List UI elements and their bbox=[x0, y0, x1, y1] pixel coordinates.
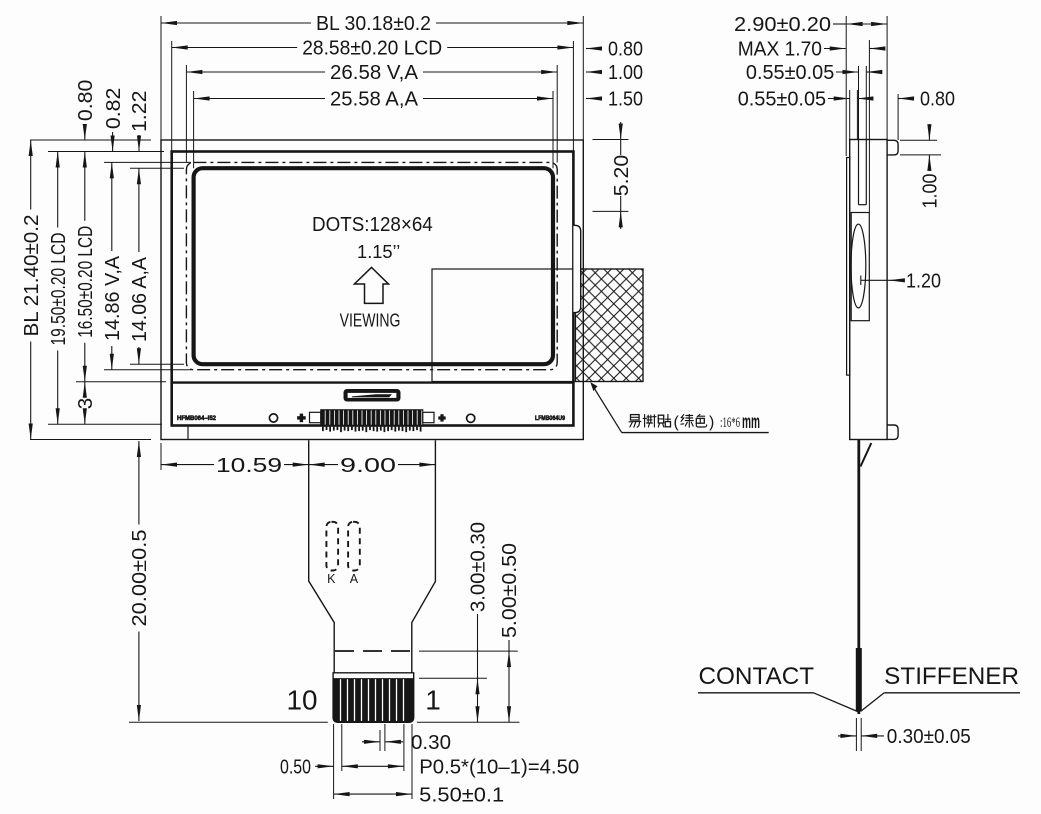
svg-text:20.00±0.5: 20.00±0.5 bbox=[128, 530, 151, 627]
svg-text:HFMB064–I52: HFMB064–I52 bbox=[177, 415, 216, 422]
svg-text:26.58 V,A: 26.58 V,A bbox=[330, 61, 418, 84]
svg-text:16.50±0.20 LCD: 16.50±0.20 LCD bbox=[74, 226, 97, 338]
svg-text:BL 21.40±0.2: BL 21.40±0.2 bbox=[20, 215, 43, 337]
svg-text:K: K bbox=[327, 572, 336, 586]
svg-text:0.80: 0.80 bbox=[608, 38, 643, 61]
svg-text:MAX 1.70: MAX 1.70 bbox=[738, 38, 822, 61]
svg-text:9.00: 9.00 bbox=[340, 454, 396, 477]
svg-text:DOTS:128×64: DOTS:128×64 bbox=[312, 214, 433, 236]
svg-text:25.58 A,A: 25.58 A,A bbox=[330, 88, 418, 111]
svg-text:10.59: 10.59 bbox=[216, 454, 282, 477]
svg-text:1.50: 1.50 bbox=[608, 88, 643, 111]
svg-text:0.55±0.05: 0.55±0.05 bbox=[746, 61, 834, 84]
svg-text:P0.5*(10–1)=4.50: P0.5*(10–1)=4.50 bbox=[419, 755, 579, 778]
svg-text:14.86 V,A: 14.86 V,A bbox=[101, 256, 124, 341]
svg-text:): ) bbox=[709, 414, 714, 431]
svg-text:5.50±0.1: 5.50±0.1 bbox=[419, 783, 504, 806]
svg-text:BL 30.18±0.2: BL 30.18±0.2 bbox=[316, 12, 431, 35]
svg-text:1.20: 1.20 bbox=[906, 269, 941, 292]
svg-text:mm: mm bbox=[742, 411, 760, 433]
svg-text:3: 3 bbox=[74, 398, 97, 409]
svg-text:1.22: 1.22 bbox=[128, 91, 151, 133]
svg-text:2.90±0.20: 2.90±0.20 bbox=[734, 13, 831, 36]
svg-text:3.00±0.30: 3.00±0.30 bbox=[467, 522, 490, 612]
svg-text:0.30: 0.30 bbox=[411, 731, 451, 754]
svg-text:A: A bbox=[350, 572, 359, 586]
svg-text:19.50±0.20 LCD: 19.50±0.20 LCD bbox=[47, 233, 70, 346]
svg-text:CONTACT: CONTACT bbox=[699, 663, 815, 690]
svg-text:LFMB064U9: LFMB064U9 bbox=[535, 415, 565, 422]
svg-text:10: 10 bbox=[287, 684, 318, 715]
svg-text:0.55±0.05: 0.55±0.05 bbox=[738, 88, 826, 111]
svg-text:0.30±0.05: 0.30±0.05 bbox=[887, 725, 971, 748]
svg-text:0.80: 0.80 bbox=[74, 80, 97, 122]
svg-text:1: 1 bbox=[425, 684, 441, 715]
svg-text:0.82: 0.82 bbox=[102, 88, 125, 130]
svg-text:(: ( bbox=[674, 414, 680, 431]
svg-text:1.15’’: 1.15’’ bbox=[357, 241, 400, 262]
svg-text:28.58±0.20 LCD: 28.58±0.20 LCD bbox=[302, 37, 442, 60]
svg-text:14.06 A,A: 14.06 A,A bbox=[128, 257, 151, 342]
svg-text:VIEWING: VIEWING bbox=[340, 310, 401, 330]
svg-text:5.20: 5.20 bbox=[610, 155, 633, 197]
svg-text:STIFFENER: STIFFENER bbox=[884, 663, 1019, 690]
svg-text:1.00: 1.00 bbox=[608, 61, 643, 84]
svg-text:5.00±0.50: 5.00±0.50 bbox=[498, 543, 521, 638]
svg-text:0.80: 0.80 bbox=[920, 88, 955, 111]
svg-text:1.00: 1.00 bbox=[919, 174, 942, 209]
svg-text:0.50: 0.50 bbox=[280, 755, 311, 778]
svg-text::16*6: :16*6 bbox=[720, 415, 740, 431]
